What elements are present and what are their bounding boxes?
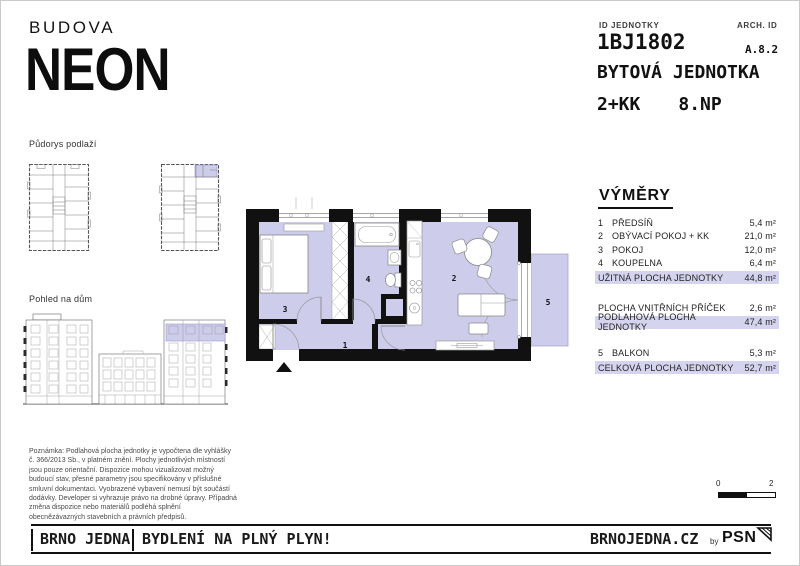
footer-brand: BRNO JEDNA (40, 530, 130, 548)
footer-by-label: by (710, 537, 718, 546)
floorplan-section-label: Půdorys podlaží (29, 139, 97, 149)
footer-divider (31, 529, 33, 551)
arch-id-value: A.8.2 (745, 43, 778, 56)
unit-type-label: BYTOVÁ JEDNOTKA (597, 62, 760, 83)
areas-title: VÝMĚRY (598, 187, 673, 209)
coffee-table (469, 323, 488, 334)
sofa (458, 294, 505, 316)
building-elevation (23, 311, 228, 407)
room-label-balcony: 5 (546, 298, 551, 307)
sideboard (436, 341, 494, 350)
room-label-hall: 1 (343, 341, 348, 350)
wardrobe-bedroom (332, 221, 348, 320)
floor-area-total-row: PODLAHOVÁ PLOCHA JEDNOTKY 47,4 m² (595, 316, 779, 329)
mini-floorplan-left (27, 162, 91, 254)
dining-table (465, 239, 492, 266)
unit-id-value: 1BJ1802 (597, 30, 686, 54)
table-row: 2 OBÝVACÍ POKOJ + KK 21,0 m² (598, 230, 776, 244)
footer-tagline: BYDLENÍ NA PLNÝ PLYN! (142, 530, 332, 548)
elevation-section-label: Pohled na dům (29, 294, 92, 304)
windows (279, 197, 488, 222)
floorplan-sheet: BUDOVA NEON ID JEDNOTKY 1BJ1802 ARCH. ID… (0, 0, 800, 566)
legal-note: Poznámka: Podlahová plocha jednotky je v… (29, 447, 237, 522)
mini-floorplan-right (159, 162, 221, 254)
floor-value: 8.NP (678, 94, 721, 115)
usable-area-total-row: UŽITNÁ PLOCHA JEDNOTKY 44,8 m² (595, 271, 779, 284)
psn-logo-text: PSN (722, 529, 756, 547)
psn-flag-icon (756, 526, 773, 542)
grand-total-row: CELKOVÁ PLOCHA JEDNOTKY 52,7 m² (595, 361, 779, 374)
footer-website: BRNOJEDNA.CZ (590, 530, 698, 548)
table-row: 4 KOUPELNA 6,4 m² (598, 257, 776, 271)
bathtub (355, 223, 399, 246)
scale-end: 2 (769, 479, 773, 488)
room-hall-fill (258, 320, 408, 350)
disposition-value: 2+KK (597, 94, 640, 115)
building-name-logo: NEON (25, 35, 170, 105)
kitchen-counter (407, 221, 422, 325)
toilet (386, 273, 402, 287)
room-label-living: 2 (452, 274, 457, 283)
unit-disposition-row: 2+KK 8.NP (597, 94, 722, 115)
footer-top-rule (31, 524, 771, 526)
room-label-bathroom: 4 (366, 275, 371, 284)
balcony-row: 5 BALKON 5,3 m² (598, 347, 776, 361)
shaft (386, 299, 403, 316)
room-label-bedroom: 3 (283, 305, 288, 314)
bathroom-sink (388, 250, 401, 265)
highlighted-floor (166, 324, 225, 341)
entrance-arrow-icon (276, 362, 292, 372)
areas-table: VÝMĚRY 1 PŘEDSÍŇ 5,4 m² 2 OBÝVACÍ POKOJ … (598, 187, 776, 374)
table-row: 3 POKOJ 12,0 m² (598, 243, 776, 257)
main-floorplan: 1 2 3 4 5 (241, 191, 581, 391)
shelf (284, 224, 324, 231)
unit-id-label: ID JEDNOTKY (599, 21, 659, 30)
footer-divider (132, 529, 134, 551)
footer-bottom-rule (31, 552, 771, 554)
table-row: 1 PŘEDSÍŇ 5,4 m² (598, 216, 776, 230)
scale-start: 0 (716, 479, 720, 488)
bed (260, 235, 308, 293)
highlighted-unit (195, 165, 217, 177)
arch-id-label: ARCH. ID (737, 21, 777, 30)
scale-bar (718, 492, 776, 498)
